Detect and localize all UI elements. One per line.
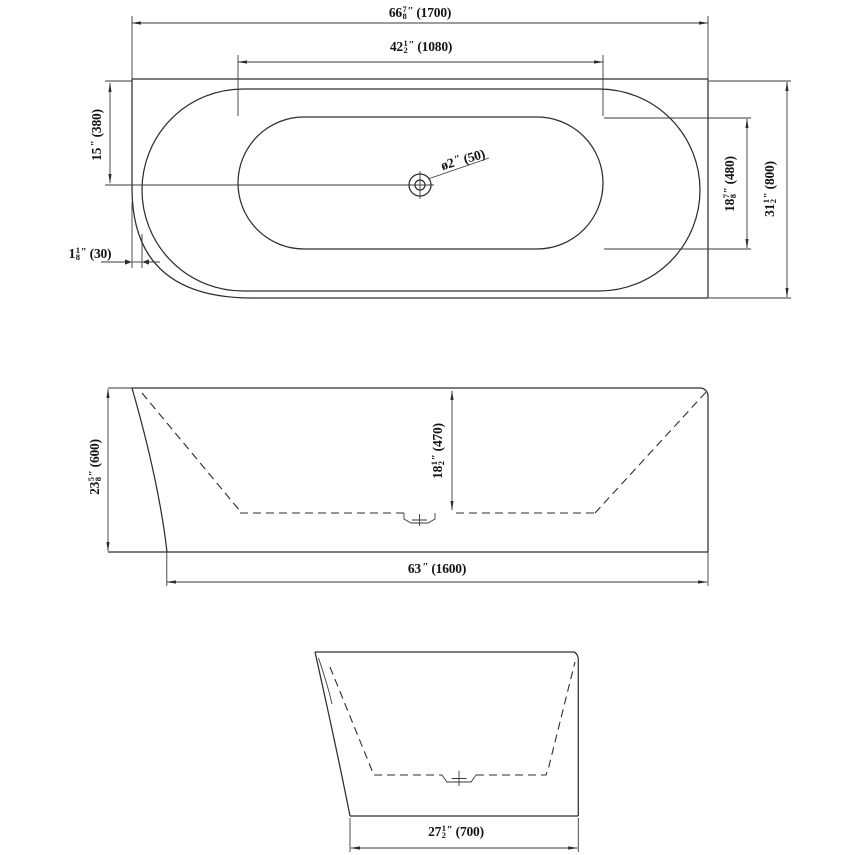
- side-view-dimensions: [108, 388, 708, 586]
- dim-overall-width-label: 31 12 ″ (800): [762, 161, 778, 217]
- drawing-linework: [0, 0, 855, 855]
- end-view: [315, 652, 578, 852]
- side-drain-icon: [404, 513, 435, 526]
- dim-base-length-label: 63 ″ (1600): [408, 561, 466, 577]
- side-left-curve: [132, 388, 167, 552]
- end-drain-icon: [442, 771, 476, 786]
- dim-drain-offset-label: 15 ″ (380): [89, 109, 105, 161]
- end-basin-hidden-line: [330, 662, 575, 775]
- dim-edge-gap-label: 1 18 ″ (30): [69, 246, 112, 262]
- dim-basin-depth-label: 18 12 ″ (470): [430, 423, 446, 479]
- drain-icon: [406, 171, 434, 199]
- dim-basin-length-label: 42 12 ″ (1080): [390, 39, 452, 55]
- tub-inner-basin: [238, 117, 603, 249]
- side-view: [108, 388, 708, 586]
- end-left-curve: [315, 652, 350, 816]
- side-profile-outline: [132, 388, 708, 552]
- dim-basin-width-label: 18 78 ″ (480): [722, 156, 738, 212]
- dim-overall-length-label: 66 78 ″ (1700): [389, 5, 451, 21]
- side-basin-hidden-line: [142, 391, 707, 513]
- technical-drawing: 66 78 ″ (1700) 42 12 ″ (1080) 15 ″ (380)…: [0, 0, 855, 855]
- dim-overall-height-label: 23 58 ″ (600): [87, 439, 103, 495]
- dim-base-width-label: 27 12 ″ (700): [428, 824, 484, 840]
- end-profile-outline: [315, 652, 578, 816]
